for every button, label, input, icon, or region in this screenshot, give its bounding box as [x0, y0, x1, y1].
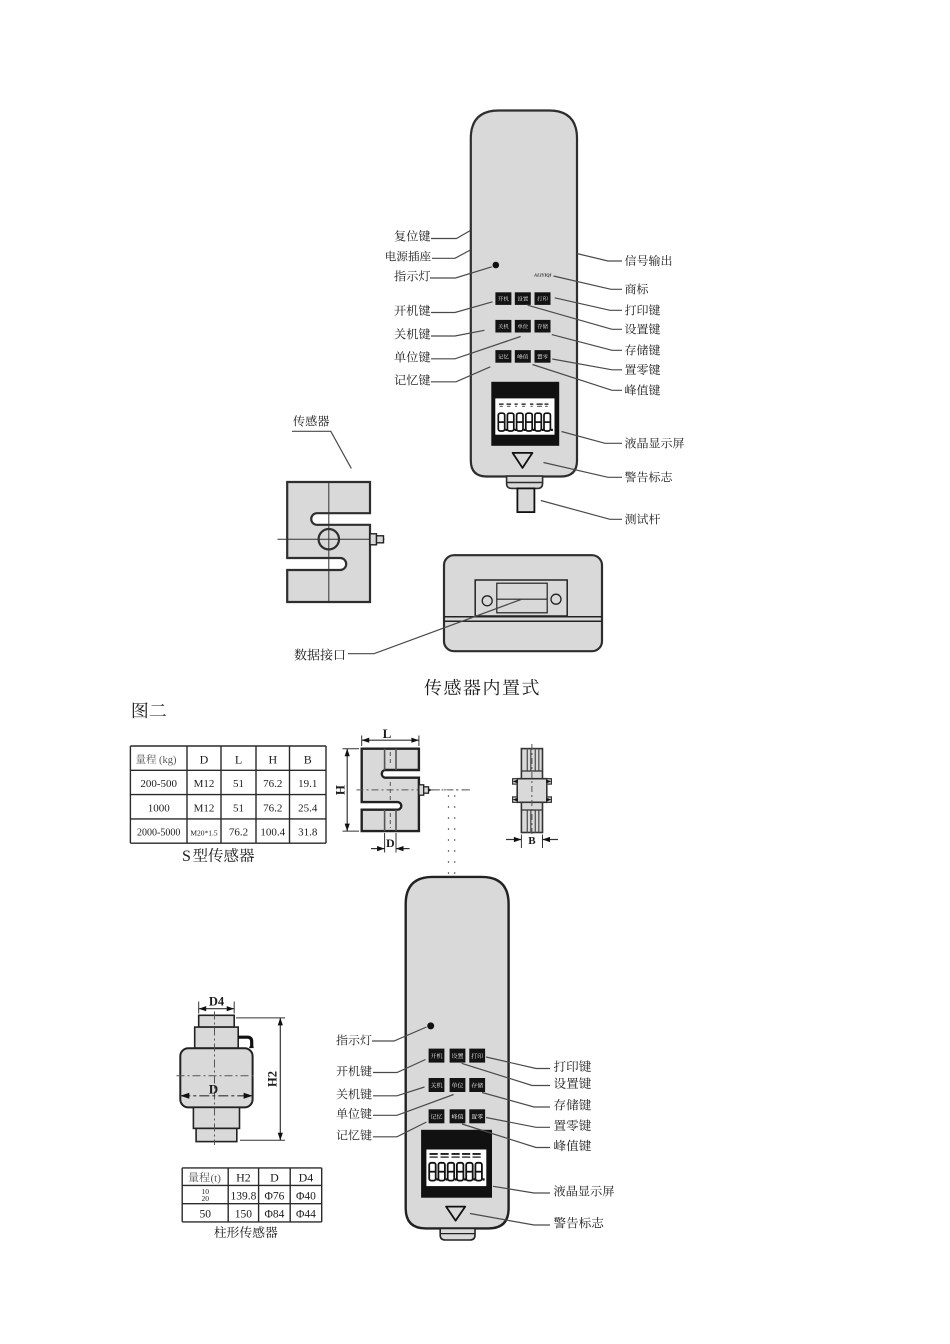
svg-text:76.2: 76.2: [263, 802, 282, 814]
svg-text:19.1: 19.1: [298, 778, 317, 790]
svg-text:D: D: [200, 753, 209, 767]
svg-text:Φ44: Φ44: [296, 1209, 316, 1221]
svg-text:76.2: 76.2: [263, 778, 282, 790]
svg-text:D4: D4: [299, 1171, 314, 1185]
svg-text:H2: H2: [266, 1071, 280, 1087]
svg-text:D4: D4: [209, 995, 225, 1009]
svg-text:D: D: [386, 836, 395, 850]
svg-text:ALIYIQI: ALIYIQI: [533, 273, 552, 278]
svg-text:50: 50: [199, 1209, 211, 1221]
svg-text:150: 150: [235, 1209, 253, 1221]
svg-text:31.8: 31.8: [298, 827, 318, 839]
svg-text:1000: 1000: [148, 802, 171, 814]
svg-text:100.4: 100.4: [260, 827, 285, 839]
svg-text:M12: M12: [194, 802, 215, 814]
svg-text:H: H: [333, 785, 348, 795]
svg-text:D: D: [270, 1171, 279, 1185]
svg-text:L: L: [383, 726, 392, 741]
svg-text:(kg): (kg): [159, 755, 177, 766]
svg-text:D: D: [209, 1082, 218, 1097]
svg-text:76.2: 76.2: [229, 827, 248, 839]
svg-text:H: H: [268, 753, 277, 767]
svg-text:2000-5000: 2000-5000: [137, 828, 180, 839]
svg-text:Φ40: Φ40: [296, 1190, 316, 1202]
svg-text:B: B: [528, 835, 536, 847]
svg-text:H2: H2: [236, 1171, 251, 1185]
svg-text:51: 51: [233, 802, 244, 814]
svg-text:51: 51: [233, 778, 244, 790]
svg-text:25.4: 25.4: [298, 802, 318, 814]
svg-text:200-500: 200-500: [140, 778, 177, 790]
svg-text:20: 20: [201, 1194, 209, 1203]
svg-text:Φ84: Φ84: [264, 1209, 284, 1221]
svg-text:S: S: [182, 848, 191, 865]
svg-text:139.8: 139.8: [230, 1190, 256, 1202]
svg-text:M12: M12: [194, 778, 215, 790]
svg-text:(t): (t): [211, 1172, 222, 1184]
svg-text:L: L: [235, 753, 242, 767]
svg-text:Φ76: Φ76: [264, 1190, 284, 1202]
svg-text:M20*1.5: M20*1.5: [190, 829, 218, 838]
svg-text:B: B: [304, 753, 312, 767]
